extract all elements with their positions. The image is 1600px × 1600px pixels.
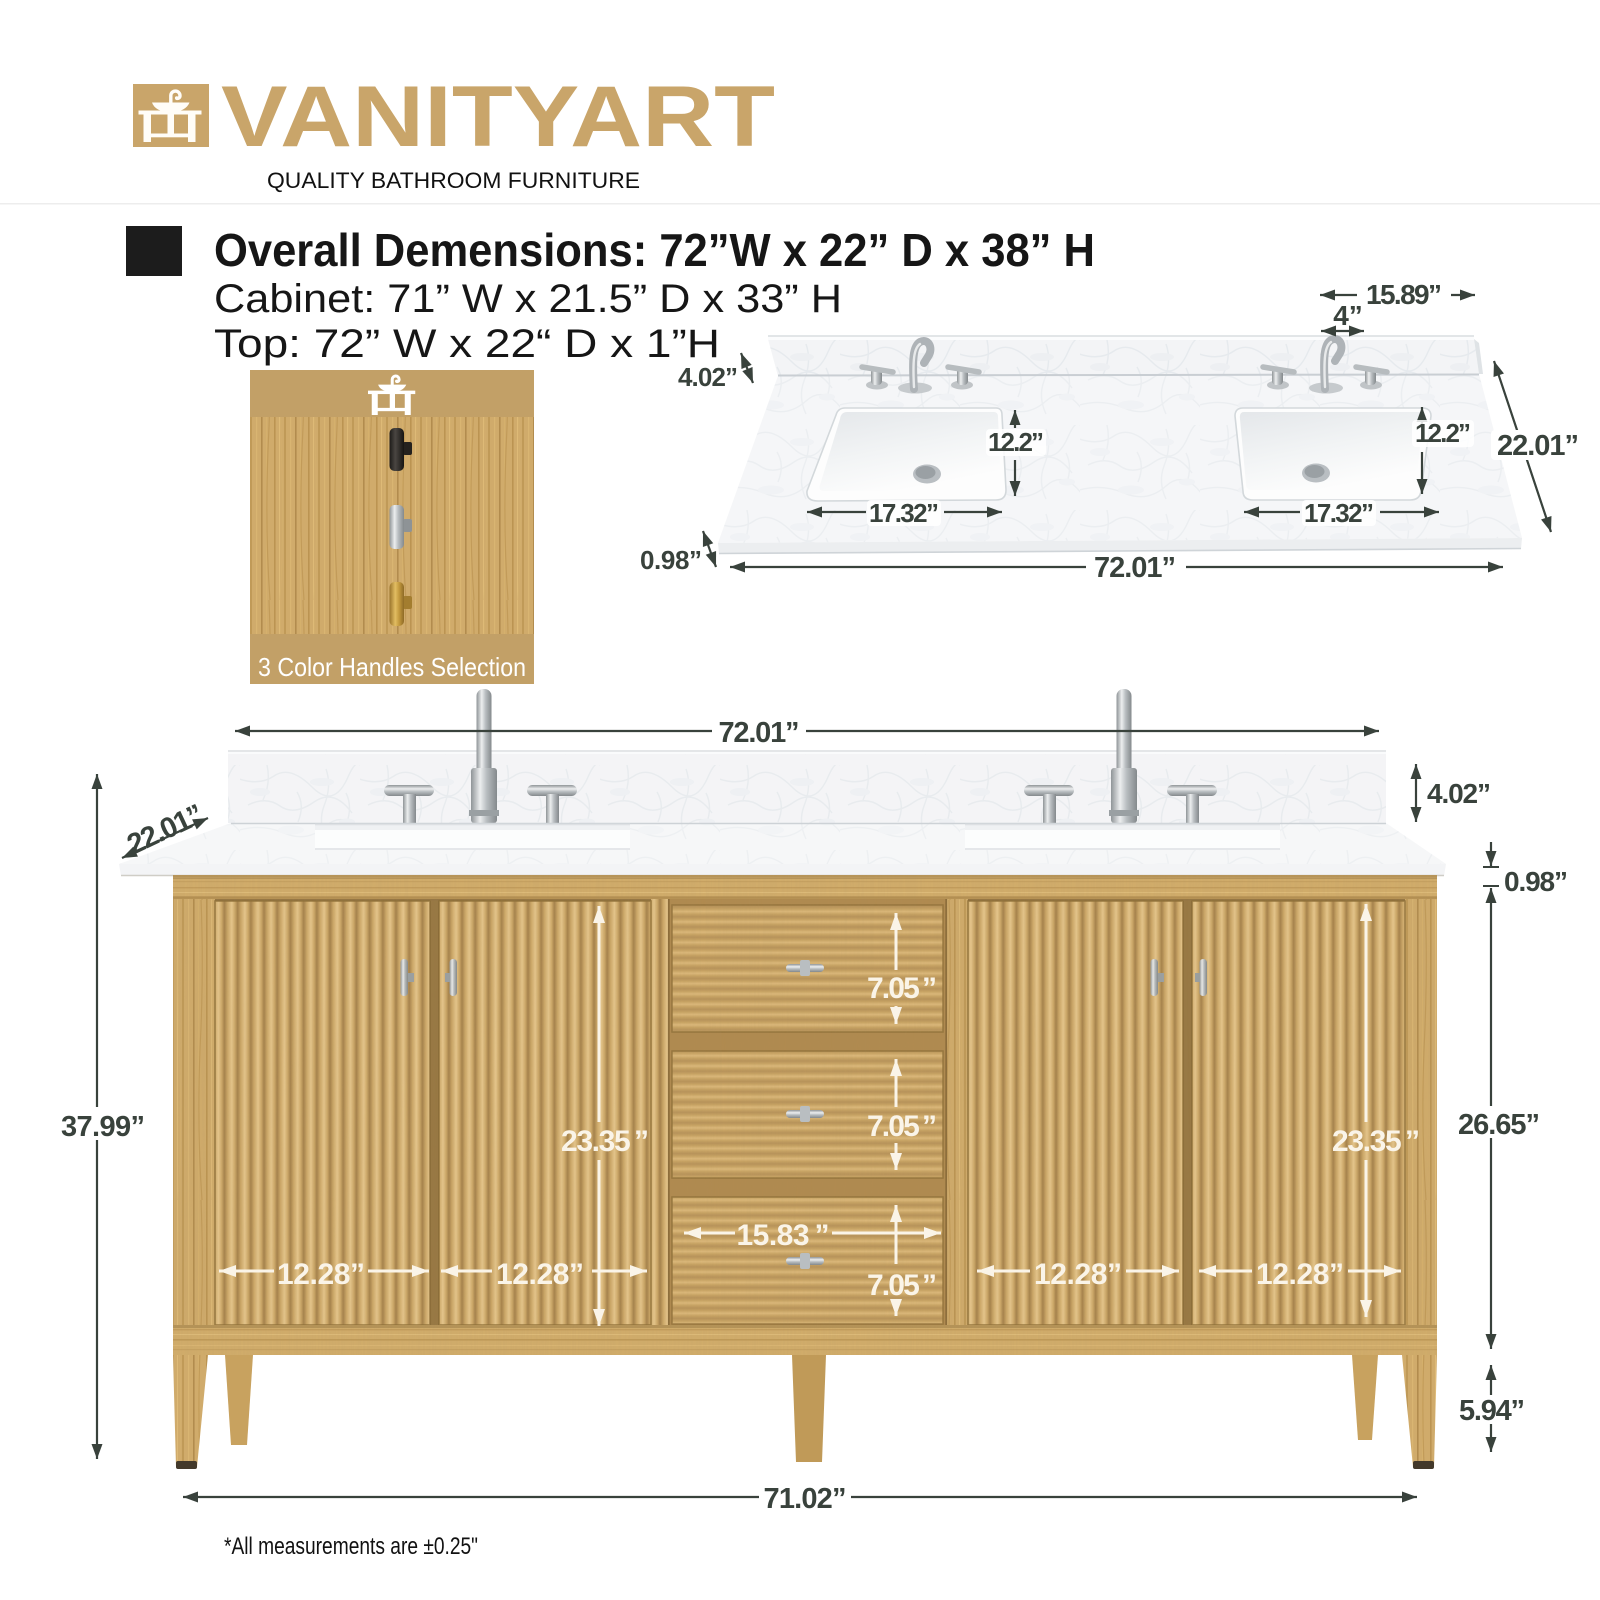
svg-text:Overall Demensions: 72”W x 22”: Overall Demensions: 72”W x 22” D x 38” H <box>214 224 1095 276</box>
svg-text:23.35 ”: 23.35 ” <box>561 1125 649 1158</box>
svg-text:Top: 72” W x 22“ D x 1”H: Top: 72” W x 22“ D x 1”H <box>214 322 720 366</box>
svg-text:12.2”: 12.2” <box>988 427 1044 457</box>
svg-text:72.01”: 72.01” <box>719 717 800 749</box>
svg-text:*All measurements are ±0.25": *All measurements are ±0.25" <box>224 1533 478 1560</box>
svg-text:5.94”: 5.94” <box>1459 1395 1525 1427</box>
svg-text:26.65”: 26.65” <box>1458 1109 1540 1141</box>
svg-text:72.01”: 72.01” <box>1094 552 1176 584</box>
svg-text:3 Color Handles Selection: 3 Color Handles Selection <box>258 652 526 682</box>
svg-text:4”: 4” <box>1333 300 1363 331</box>
svg-text:Cabinet: 71” W x 21.5” D x 33”: Cabinet: 71” W x 21.5” D x 33” H <box>214 277 842 321</box>
svg-text:12.28”: 12.28” <box>496 1258 584 1291</box>
svg-text:12.28”: 12.28” <box>1256 1258 1344 1291</box>
svg-text:4.02”: 4.02” <box>678 362 738 392</box>
svg-text:7.05 ”: 7.05 ” <box>867 1110 937 1143</box>
svg-text:4.02”: 4.02” <box>1427 778 1491 809</box>
svg-text:71.02”: 71.02” <box>764 1483 847 1515</box>
svg-text:12.28”: 12.28” <box>277 1258 365 1291</box>
svg-text:7.05 ”: 7.05 ” <box>867 972 937 1005</box>
svg-text:12.28”: 12.28” <box>1034 1258 1122 1291</box>
svg-text:0.98”: 0.98” <box>640 545 702 575</box>
svg-text:VANITYART: VANITYART <box>221 69 775 165</box>
svg-text:23.35 ”: 23.35 ” <box>1332 1125 1420 1158</box>
svg-text:7.05 ”: 7.05 ” <box>867 1269 937 1302</box>
svg-text:QUALITY BATHROOM FURNITURE: QUALITY BATHROOM FURNITURE <box>267 168 640 193</box>
svg-text:12.2”: 12.2” <box>1415 418 1471 448</box>
svg-text:17.32”: 17.32” <box>1304 498 1374 528</box>
svg-text:22.01”: 22.01” <box>1497 430 1579 462</box>
svg-text:0.98”: 0.98” <box>1504 866 1568 897</box>
svg-text:37.99”: 37.99” <box>61 1111 145 1143</box>
svg-text:15.83 ”: 15.83 ” <box>737 1219 830 1252</box>
svg-text:17.32”: 17.32” <box>869 498 939 528</box>
svg-text:15.89”: 15.89” <box>1366 279 1442 310</box>
